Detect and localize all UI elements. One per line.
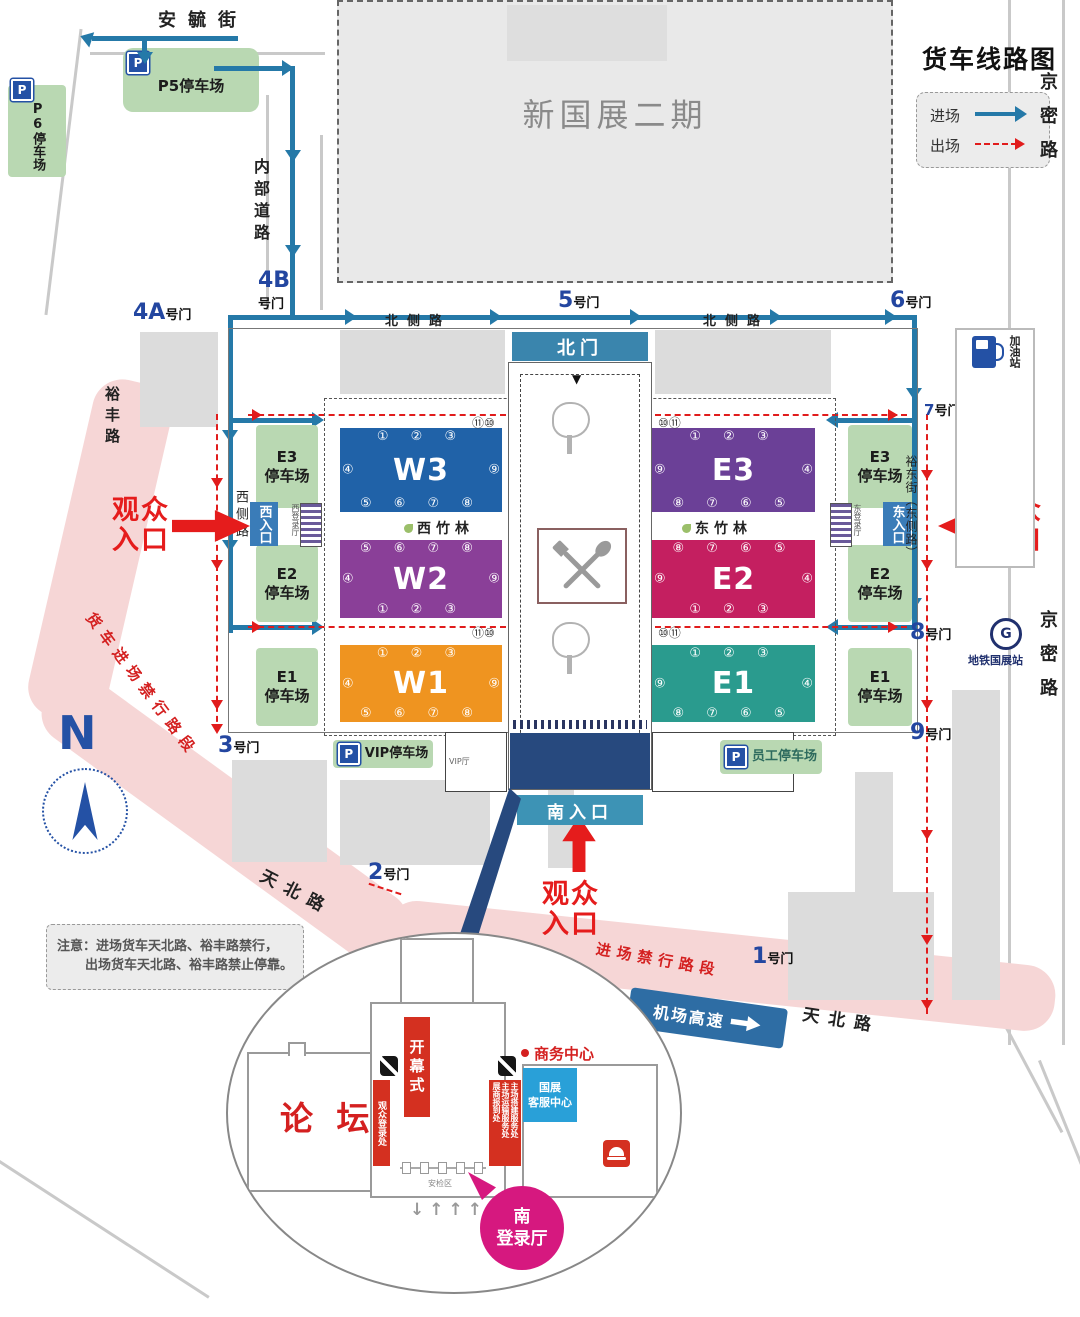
building-block (952, 690, 1000, 1000)
south-entrance-label: 南入口 (547, 798, 613, 823)
hall-e3-label: E3 (712, 453, 755, 488)
visitor-entrance-text: 入口 (542, 909, 600, 940)
road-line (320, 135, 323, 310)
gate-number: 4B (258, 268, 290, 293)
legend-exit-arrowhead (1015, 138, 1025, 150)
exit-route-arrow (921, 830, 933, 840)
building-block (340, 780, 490, 865)
exit-route-arrow (921, 935, 933, 945)
gate-suffix: 号门 (905, 296, 931, 311)
building-block (232, 760, 327, 862)
turnstile-icon (456, 1162, 465, 1174)
entry-route (230, 315, 914, 320)
escalator-icon (498, 1056, 516, 1076)
turnstile-icon (474, 1162, 483, 1174)
street-neibu: 内部道路 (248, 158, 272, 246)
tree-icon (548, 622, 592, 676)
parking-label: E1 (870, 668, 891, 687)
compass-arrow-icon (64, 782, 106, 840)
legend-entry-arrow (975, 112, 1017, 116)
parking-west-e2: E2 停车场 (256, 545, 318, 622)
service-center-label: 国展 (539, 1080, 561, 1095)
street-xice: 西侧路 (231, 490, 250, 541)
gate-suffix: 号门 (925, 628, 951, 643)
gate-suffix: 号门 (383, 868, 409, 883)
security-area-label: 安检区 (428, 1178, 452, 1189)
corridor-neck (400, 938, 474, 1006)
gate-suffix: 号门 (573, 296, 599, 311)
entry-route-arrow (630, 309, 642, 325)
visitor-entrance-text: 观众 (112, 495, 170, 526)
parking-p6-label: P6停车场 (29, 102, 45, 171)
exit-route-arrow (921, 560, 933, 570)
turnstile-icon (420, 1162, 429, 1174)
note-line1: 注意：进场货车天北路、裕丰路禁行， (57, 935, 295, 954)
gate-4b: 4B号门 (258, 268, 290, 312)
gate-number: 2 (368, 860, 383, 885)
metro-logo-letter: G (1000, 626, 1012, 642)
legend-exit-label: 出场 (930, 135, 960, 156)
gate-8: 8号门 (910, 620, 951, 645)
hall-gate-numbers: ⑨ (488, 463, 500, 478)
hall-e1: E1 ① ② ③ ⑧ ⑦ ⑥ ⑤ ⑨ ④ (652, 645, 815, 722)
corridor-down-mark: ▼ (572, 372, 581, 386)
airport-expressway-label: 机场高速 (652, 999, 727, 1033)
hall-gate-numbers: ④ (801, 676, 813, 691)
inset-circle: 论 坛 开幕式 观众登录处 主场搭建服务处 主场运输服务处 展商报到处 商务中心… (226, 932, 682, 1294)
hall-gate-numbers: ① ② ③ (652, 429, 815, 444)
gate-3: 3号门 (218, 733, 259, 758)
parking-vip: P VIP停车场 (333, 740, 433, 768)
parking-p6: P P6停车场 (8, 85, 66, 177)
exit-route-arrow (921, 1000, 933, 1010)
service-center-box: 国展 客服中心 (523, 1068, 577, 1122)
parking-label: E1 (277, 668, 298, 687)
parking-vip-label: VIP停车场 (365, 746, 428, 762)
south-registration-hall: 南 登录厅 (480, 1186, 564, 1270)
hall-gate-numbers: ⑤ ⑥ ⑦ ⑧ (340, 706, 502, 721)
hall-gate-numbers: ④ (342, 463, 354, 478)
parking-label: 停车场 (264, 584, 309, 603)
parking-icon: P (11, 79, 33, 101)
gate-9: 9号门 (910, 720, 951, 745)
gas-station-label: 加油站 (1006, 335, 1022, 368)
parking-staff-label: 员工停车场 (752, 749, 817, 765)
hall-gate-numbers: ① ② ③ (652, 602, 815, 617)
map-title: 货车线路图 (922, 40, 1057, 76)
north-gate-banner: 北门 (512, 332, 648, 361)
hall-e2-label: E2 (712, 562, 755, 597)
turnstile-icon (402, 1162, 411, 1174)
hall-w2-label: W2 (393, 562, 449, 597)
street-yudong: 裕东街（东侧路） (903, 455, 920, 559)
hall-gate-numbers: ④ (342, 572, 354, 587)
hall-gate-numbers: ① ② ③ (652, 646, 815, 661)
parking-icon: P (725, 746, 747, 768)
visitor-registration-strip: 观众登录处 (373, 1080, 390, 1166)
entry-route (290, 66, 295, 318)
hall-gate-numbers: ① ② ③ (340, 646, 502, 661)
parking-west-e1: E1 停车场 (256, 648, 318, 726)
hard-hat-icon (603, 1140, 630, 1167)
entry-route-arrow (137, 52, 153, 64)
parking-label: E2 (870, 565, 891, 584)
gate-suffix: 号门 (233, 741, 259, 756)
gate-suffix: 号门 (258, 297, 284, 312)
parking-label: 停车场 (857, 687, 902, 706)
street-beice-west: 北侧路 (385, 310, 451, 329)
exit-route (926, 414, 928, 1014)
service-label: 主场运输服务处 (501, 1082, 509, 1164)
service-center-label: 客服中心 (528, 1095, 572, 1110)
east-hall-connector (830, 503, 852, 547)
south-hall (510, 733, 650, 789)
bullet-icon (521, 1049, 529, 1057)
street-yufeng: 裕丰路 (102, 386, 123, 449)
hall-gate-numbers: ⑨ (488, 572, 500, 587)
hall-e2: E2 ⑧ ⑦ ⑥ ⑤ ① ② ③ ⑨ ④ (652, 540, 815, 618)
tree-crown (552, 622, 590, 658)
hall-w1-label: W1 (393, 666, 449, 701)
gate-6: 6号门 (890, 288, 931, 313)
hall-gate-numbers: ④ (801, 463, 813, 478)
visitor-entrance-text: 入口 (112, 525, 170, 556)
west-bamboo-text: 西竹林 (417, 521, 474, 537)
legend-entry-arrowhead (1015, 106, 1027, 122)
parking-east-e1: E1 停车场 (848, 648, 912, 726)
south-turnstile-strip (513, 720, 647, 729)
parking-west-e3: E3 停车场 (256, 425, 318, 508)
gate-number: 8 (910, 620, 925, 645)
street-anyu: 安毓街 (158, 6, 248, 32)
entry-route (92, 36, 238, 41)
metro-logo-icon: G (990, 618, 1022, 650)
escalator-icon (380, 1056, 398, 1076)
exit-route-arrow (211, 700, 223, 710)
parking-staff: P 员工停车场 (720, 740, 822, 774)
hall-corner-numbers: ⑩⑪ (658, 624, 681, 641)
gas-pump-icon (972, 336, 996, 368)
parking-label: E2 (277, 565, 298, 584)
services-strip: 主场搭建服务处 主场运输服务处 展商报到处 (489, 1080, 521, 1166)
hall-corner-numbers: ⑪⑩ (472, 624, 495, 641)
phase2-inner-patch (507, 5, 667, 61)
parking-p5-label: P5停车场 (158, 77, 224, 96)
parking-label: E3 (870, 448, 891, 467)
gate-4a: 4A号门 (133, 300, 191, 325)
hall-gate-numbers: ⑧ ⑦ ⑥ ⑤ (652, 496, 815, 511)
gate-number: 3 (218, 733, 233, 758)
street-beice-east: 北侧路 (703, 310, 769, 329)
opening-ceremony-label: 开幕式 (407, 1039, 428, 1096)
opening-ceremony-banner: 开幕式 (404, 1017, 430, 1117)
airport-arrow-icon (730, 1012, 762, 1034)
restaurant-area (537, 528, 627, 604)
gate-suffix: 号门 (925, 728, 951, 743)
hall-gate-numbers: ⑤ ⑥ ⑦ ⑧ (340, 496, 502, 511)
hall-gate-numbers: ① ② ③ (340, 602, 502, 617)
south-registration-label: 南 (514, 1206, 531, 1228)
street-jingmi-top: 京密路 (1034, 72, 1060, 174)
hall-gate-numbers: ① ② ③ (340, 429, 502, 444)
parking-label: E3 (277, 448, 298, 467)
compass-n: N (58, 706, 97, 760)
hall-gate-numbers: ⑤ ⑥ ⑦ ⑧ (340, 541, 502, 556)
entry-route-arrow (285, 150, 301, 162)
visitor-entrance-west: 观众 入口 (112, 496, 170, 556)
entry-route-arrow (770, 309, 782, 325)
building-block (788, 892, 934, 1000)
hall-gate-numbers: ④ (342, 676, 354, 691)
hall-w3: W3 ① ② ③ ⑤ ⑥ ⑦ ⑧ ④ ⑨ (340, 428, 502, 512)
compass-circle (42, 768, 128, 854)
hall-gate-numbers: ④ (801, 572, 813, 587)
east-hall-label: 东登录厅 (852, 504, 863, 536)
entry-route-arrow (490, 309, 502, 325)
east-bamboo-text: 东竹林 (695, 521, 752, 537)
service-label: 主场搭建服务处 (510, 1082, 518, 1164)
hall-gate-numbers: ⑨ (654, 572, 666, 587)
gate-number: 1 (752, 944, 767, 969)
gate-2: 2号门 (368, 860, 409, 885)
parking-label: 停车场 (264, 687, 309, 706)
hall-w2: W2 ⑤ ⑥ ⑦ ⑧ ① ② ③ ④ ⑨ (340, 540, 502, 618)
tree-trunk (567, 435, 572, 454)
south-registration-label: 登录厅 (497, 1228, 548, 1250)
hard-hat-dome (609, 1147, 624, 1156)
tree-icon (548, 402, 592, 456)
gate-number: 7 (924, 401, 934, 419)
hall-corner-numbers: ⑪⑩ (472, 414, 495, 431)
metro-station-label: 地铁国展站 (968, 652, 1023, 668)
hall-gate-numbers: ⑧ ⑦ ⑥ ⑤ (652, 541, 815, 556)
exit-route-arrow (211, 478, 223, 488)
phase2-label: 新国展二期 (339, 90, 891, 136)
hard-hat-brim (607, 1157, 626, 1160)
service-label: 展商报到处 (492, 1082, 500, 1164)
legend-entry-label: 进场 (930, 105, 960, 126)
tree-trunk (567, 655, 572, 674)
business-center-label: 商务中心 (521, 1043, 594, 1064)
street-jingmi-mid: 京密路 (1034, 610, 1060, 712)
note-line2: 出场货车天北路、裕丰路禁止停靠。 (85, 954, 295, 973)
parking-label: 停车场 (264, 467, 309, 486)
exit-route (216, 414, 218, 732)
hall-w1: W1 ① ② ③ ⑤ ⑥ ⑦ ⑧ ④ ⑨ (340, 645, 502, 722)
forum-label: 论 坛 (280, 1092, 376, 1140)
vip-hall-label: VIP厅 (449, 756, 470, 767)
north-gate-label: 北门 (557, 334, 603, 360)
hall-gate-numbers: ⑧ ⑦ ⑥ ⑤ (652, 706, 815, 721)
west-bamboo-label: 西竹林 (404, 518, 474, 538)
gate-suffix: 号门 (165, 308, 191, 323)
gate-number: 4A (133, 300, 165, 325)
hall-e3: E3 ① ② ③ ⑧ ⑦ ⑥ ⑤ ⑨ ④ (652, 428, 815, 512)
entry-route-arrow (285, 245, 301, 257)
tree-crown (552, 402, 590, 438)
road-line (0, 1160, 210, 1299)
hall-gate-numbers: ⑨ (488, 676, 500, 691)
parking-label: 停车场 (857, 584, 902, 603)
note-box: 注意：进场货车天北路、裕丰路禁行， 出场货车天北路、裕丰路禁止停靠。 (46, 924, 304, 990)
truck-route-map: 货车线路图 进场 出场 安毓街 P P6停车场 P P5停车场 内部道路 新国展… (0, 0, 1080, 1317)
south-entrance-banner: 南入口 (517, 795, 643, 825)
west-hall-label: 西登录厅 (290, 504, 301, 536)
turnstile-icon (438, 1162, 447, 1174)
plant-icon (404, 524, 413, 533)
parking-label: 停车场 (857, 467, 902, 486)
gate-number: 6 (890, 288, 905, 313)
security-turnstiles (400, 1162, 486, 1174)
hall-gate-numbers: ⑨ (654, 676, 666, 691)
exit-route-arrow (211, 560, 223, 570)
road-line (1000, 1017, 1064, 1133)
west-entrance-box: 西入口 (250, 502, 278, 546)
entry-route-arrow (345, 309, 357, 325)
west-entrance-label: 西入口 (255, 505, 274, 544)
gate-suffix: 号门 (767, 952, 793, 967)
hall-w3-label: W3 (393, 453, 449, 488)
parking-icon: P (338, 743, 360, 765)
phase2-site: 新国展二期 (337, 0, 893, 283)
gate-5: 5号门 (558, 288, 599, 313)
gate-number: 5 (558, 288, 573, 313)
building-block (855, 772, 893, 902)
gate-1: 1号门 (752, 944, 793, 969)
road-line (1062, 0, 1065, 1045)
hall-e1-label: E1 (712, 666, 755, 701)
visitor-entrance-south: 观众 入口 (542, 880, 600, 940)
east-bamboo-label: 东竹林 (682, 518, 752, 538)
hall-corner-numbers: ⑩⑪ (658, 414, 681, 431)
visitor-registration-label: 观众登录处 (375, 1101, 388, 1146)
plant-icon (682, 524, 691, 533)
legend-box (916, 92, 1050, 168)
exit-route-arrow (921, 700, 933, 710)
visitor-entrance-text: 观众 (542, 879, 600, 910)
building-block (140, 332, 218, 427)
exit-route-arrow (921, 470, 933, 480)
hall-gate-numbers: ⑨ (654, 463, 666, 478)
west-hall-connector (300, 503, 322, 547)
business-center-text: 商务中心 (534, 1045, 594, 1063)
forum-building-step (288, 1042, 306, 1056)
gas-pump-window (976, 340, 988, 349)
legend-exit-arrow (975, 143, 1017, 145)
gate-number: 9 (910, 720, 925, 745)
